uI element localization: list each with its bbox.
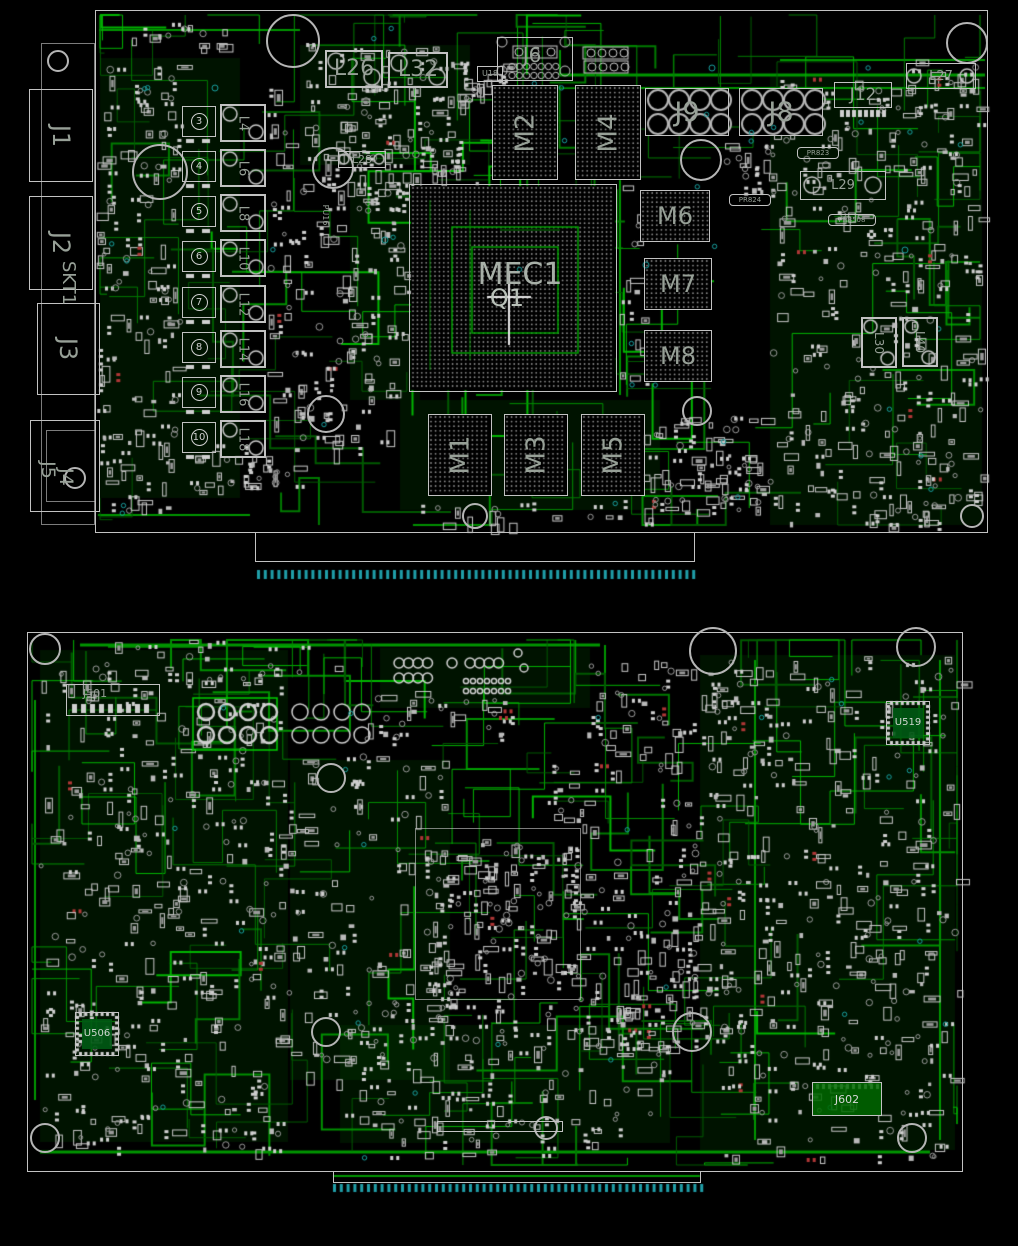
vrm-inductor: L6 xyxy=(220,149,266,187)
vrm-phase-ic: 8 xyxy=(182,332,216,363)
inductor-l27: L27 xyxy=(906,63,976,89)
resistor-pr824-label: PR824 xyxy=(739,197,761,204)
memory-m3: M3 xyxy=(504,414,568,496)
memory-m5: M5 xyxy=(581,414,645,496)
vrm-phase-number: 9 xyxy=(191,384,208,401)
vrm-phase-ic: 7 xyxy=(182,287,216,318)
memory-m4-label: M4 xyxy=(595,113,621,152)
resistor-pr823-label: PR823 xyxy=(807,150,829,157)
gpu-backside-outline xyxy=(415,828,581,1000)
memory-m6-label: M6 xyxy=(657,204,693,228)
connector-j9-label: J9 xyxy=(645,88,729,136)
mounting-hole xyxy=(897,1123,927,1153)
memory-m1: M1 xyxy=(428,414,492,496)
memory-m2-label: M2 xyxy=(512,113,538,152)
memory-m1-label: M1 xyxy=(447,436,473,475)
mounting-hole xyxy=(680,139,722,181)
pcb-assembly-drawing: J1 J2 SKT1 J3 J5 J4 3L44L65L86L107L128L1… xyxy=(0,0,1018,1246)
inductor-l28: L28 xyxy=(338,151,386,168)
inductor-l30-label: L30 xyxy=(873,332,885,354)
ic-u18: U18 xyxy=(477,66,503,82)
bracket-screw-hole xyxy=(47,50,69,72)
vrm-phase-ic: 3 xyxy=(182,106,216,137)
connector-j602-label: J602 xyxy=(812,1082,882,1116)
mounting-hole xyxy=(946,22,988,64)
vrm-inductor-label: L8 xyxy=(236,205,249,221)
connector-j12-label: J12 xyxy=(834,82,892,108)
ic-pu16-label: PU16 xyxy=(302,208,348,222)
connector-j1-label: J1 xyxy=(49,124,73,146)
inductor-l27-label: L27 xyxy=(929,70,953,83)
vrm-inductor: L4 xyxy=(220,104,266,142)
connector-j2-label: J2 xyxy=(49,232,73,254)
vrm-phase-ic: 5 xyxy=(182,196,216,227)
connector-j3: J3 xyxy=(37,303,100,395)
vrm-phase-number: 7 xyxy=(191,294,208,311)
skt1-label: SKT1 xyxy=(30,271,106,295)
vrm-phase-number: 10 xyxy=(191,429,208,446)
mounting-hole xyxy=(672,1012,712,1052)
mounting-hole xyxy=(266,14,320,68)
mounting-hole xyxy=(896,627,936,667)
memory-m4: M4 xyxy=(575,85,641,180)
connector-j6-label: J6 xyxy=(512,42,552,68)
vrm-inductor-label: L10 xyxy=(236,246,249,270)
bottom-slot-footprint xyxy=(437,1121,563,1132)
memory-m7-label: M7 xyxy=(660,272,696,296)
memory-m8: M8 xyxy=(644,330,712,382)
vrm-inductor: L12 xyxy=(220,285,266,323)
resistor-pr8508: PR8508 xyxy=(828,214,876,226)
mounting-hole xyxy=(29,633,61,665)
memory-m7: M7 xyxy=(644,258,712,310)
vrm-inductor-label: L12 xyxy=(236,292,249,316)
resistor-pr824: PR824 xyxy=(729,194,771,206)
mounting-hole xyxy=(307,395,345,433)
connector-j501-label: J501 xyxy=(70,686,120,700)
memory-m3-label: M3 xyxy=(523,436,549,475)
inductor-l40-label: L40 xyxy=(914,331,926,353)
vrm-phase-ic: 6 xyxy=(182,241,216,272)
vrm-phase-ic: 10 xyxy=(182,422,216,453)
vrm-inductor: L8 xyxy=(220,194,266,232)
vrm-inductor: L16 xyxy=(220,375,266,413)
vrm-phase-number: 3 xyxy=(191,113,208,130)
vrm-inductor-label: L16 xyxy=(236,382,249,406)
mounting-hole xyxy=(462,503,488,529)
vrm-inductor: L10 xyxy=(220,239,266,277)
ic-u519-label: U519 xyxy=(886,701,930,745)
vrm-phase-ic: 9 xyxy=(182,377,216,408)
vrm-phase-number: 5 xyxy=(191,203,208,220)
resistor-pr823: PR823 xyxy=(797,147,839,159)
inductor-l26: L26 xyxy=(325,50,383,88)
inductor-l32-label: L32 xyxy=(398,59,438,81)
connector-j3-label: J3 xyxy=(56,338,80,360)
top-board-edge-tab xyxy=(255,533,695,562)
vrm-inductor: L14 xyxy=(220,330,266,368)
connector-j1: J1 xyxy=(29,89,93,182)
mounting-hole xyxy=(960,504,984,528)
vrm-inductor-label: L14 xyxy=(236,337,249,361)
vrm-inductor: L18 xyxy=(220,420,266,458)
gpu-marker-label: Q1 xyxy=(482,284,532,312)
connector-j8-label: J8 xyxy=(739,88,823,136)
inductor-l40: L40 xyxy=(902,317,938,367)
vrm-inductor-label: L4 xyxy=(236,115,249,131)
vrm-inductor-label: L18 xyxy=(236,427,249,451)
bottom-board-edge-tab xyxy=(333,1172,701,1183)
mounting-hole xyxy=(30,1123,60,1153)
bracket-screw-hole xyxy=(132,144,188,200)
mounting-hole xyxy=(311,1017,341,1047)
mounting-hole xyxy=(689,627,737,675)
vrm-phase-number: 8 xyxy=(191,339,208,356)
inductor-l30: L30 xyxy=(861,317,897,368)
inductor-l28-label: L28 xyxy=(352,154,372,165)
mounting-hole xyxy=(316,763,346,793)
inductor-l26-label: L26 xyxy=(334,58,374,80)
vrm-phase-number: 4 xyxy=(191,158,208,175)
memory-m5-label: M5 xyxy=(600,436,626,475)
vrm-inductor-label: L6 xyxy=(236,160,249,176)
ic-u18-label: U18 xyxy=(482,70,498,78)
inductor-l29-label: L29 xyxy=(831,179,855,192)
vrm-phase-number: 6 xyxy=(191,248,208,265)
memory-m6: M6 xyxy=(640,190,710,242)
connector-j4-label: J4 xyxy=(41,467,91,487)
memory-m2: M2 xyxy=(492,85,558,180)
mounting-hole xyxy=(682,396,712,426)
inductor-l29: L29 xyxy=(800,171,886,200)
inductor-l32: L32 xyxy=(388,52,448,88)
vrm-phase-ic: 4 xyxy=(182,151,216,182)
resistor-pr8508-label: PR8508 xyxy=(839,217,866,224)
ic-u506-label: U506 xyxy=(75,1012,119,1056)
memory-m8-label: M8 xyxy=(660,344,696,368)
